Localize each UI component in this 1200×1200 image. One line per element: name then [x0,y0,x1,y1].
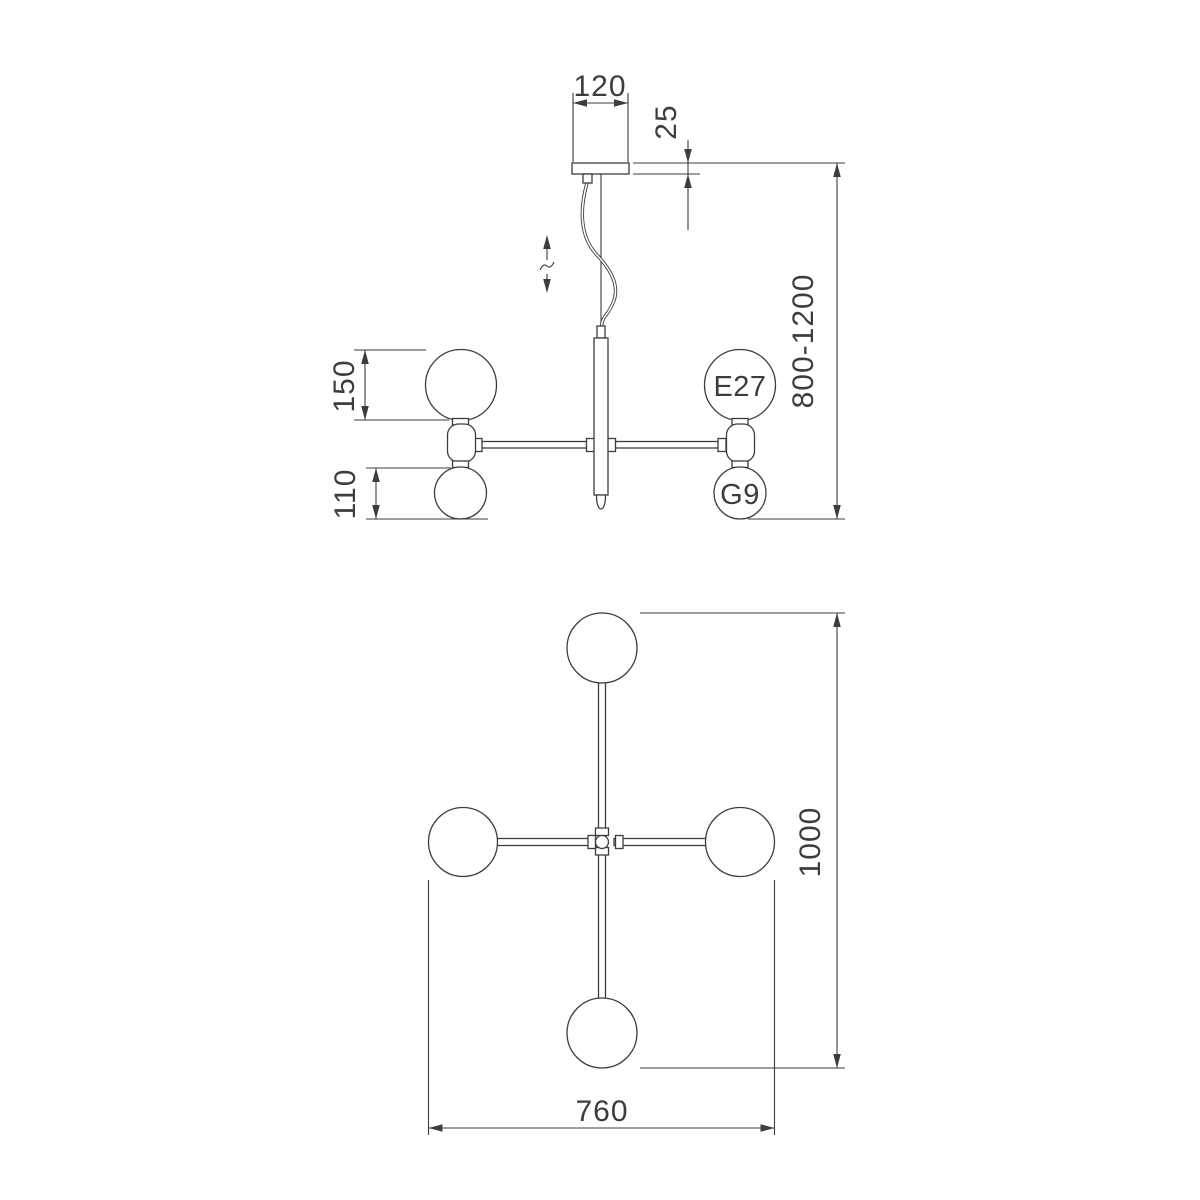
power-wire [582,183,615,326]
arrowhead-up [833,163,841,177]
right-arm [612,442,730,449]
plan-view: 1000 760 [429,613,846,1135]
rod-tube [594,338,608,495]
arrowhead-left [429,1124,443,1132]
arrowhead-up [684,174,692,188]
arrowhead-up [833,613,841,627]
dim-label-overall-width: 760 [575,1095,628,1128]
arrowhead-up [361,350,369,364]
plan-globe-right [706,808,775,877]
arrow-down-icon [543,279,551,293]
plan-arm-bottom [599,854,606,1000]
hub-collar-right [616,836,624,849]
left-lamp [426,350,497,520]
dim-canopy-drop: 25 [633,104,845,230]
lamp-body [727,424,755,462]
lamp-body [448,424,476,462]
rod-end-cap [597,495,606,509]
right-lamp-collar [718,439,726,452]
arrowhead-down [833,505,841,519]
small-globe [435,467,487,519]
rod-collar-left [587,439,595,452]
arrow-up-icon [543,235,551,249]
dim-label-canopy-drop: 25 [650,104,683,139]
hub-circle [596,836,609,849]
socket-label-small: G9 [720,479,760,511]
dim-label-large-globe: 150 [328,359,361,412]
rod-collar-right [608,439,616,452]
rod-top-connector [597,326,605,338]
tilde-break-icon [540,262,554,270]
plan-arm-top [599,681,606,830]
center-rod [594,326,608,509]
plan-center-hub [588,828,623,855]
dim-label-canopy-width: 120 [573,70,626,103]
arrowhead-down [361,406,369,420]
plan-globe-top [567,613,637,683]
arrowhead-right [761,1124,775,1132]
hub-collar-top [596,828,609,836]
ceiling-canopy [572,163,629,174]
power-wire-outline [582,183,615,326]
plan-arm-right [614,839,709,846]
socket-label-large: E27 [713,371,766,403]
height-adjustable-icon [540,235,554,293]
dim-label-overall-length: 1000 [794,807,827,878]
left-arm [470,442,590,449]
side-elevation-view: 120 25 800-1200 150 [328,70,845,519]
dim-suspension-height: 800-1200 [748,163,845,519]
right-lamp: E27 G9 [705,350,776,520]
plan-arm-left [495,839,590,846]
dim-label-suspension-height: 800-1200 [787,274,820,409]
plan-globe-left [429,808,498,877]
plan-globe-bottom [567,998,637,1068]
arrowhead-down [833,1054,841,1068]
pendant-lamp-dimension-drawing: 120 25 800-1200 150 [0,0,1200,1200]
dim-label-small-globe: 110 [329,469,362,520]
technical-drawing-page: 120 25 800-1200 150 [0,0,1200,1200]
arrowhead-down [684,149,692,163]
dim-canopy-width: 120 [573,70,628,162]
wire-outlet [583,174,592,183]
arrowhead-up [372,468,380,482]
arrowhead-down [372,505,380,519]
large-globe [426,350,497,421]
hub-collar-left [588,836,596,849]
